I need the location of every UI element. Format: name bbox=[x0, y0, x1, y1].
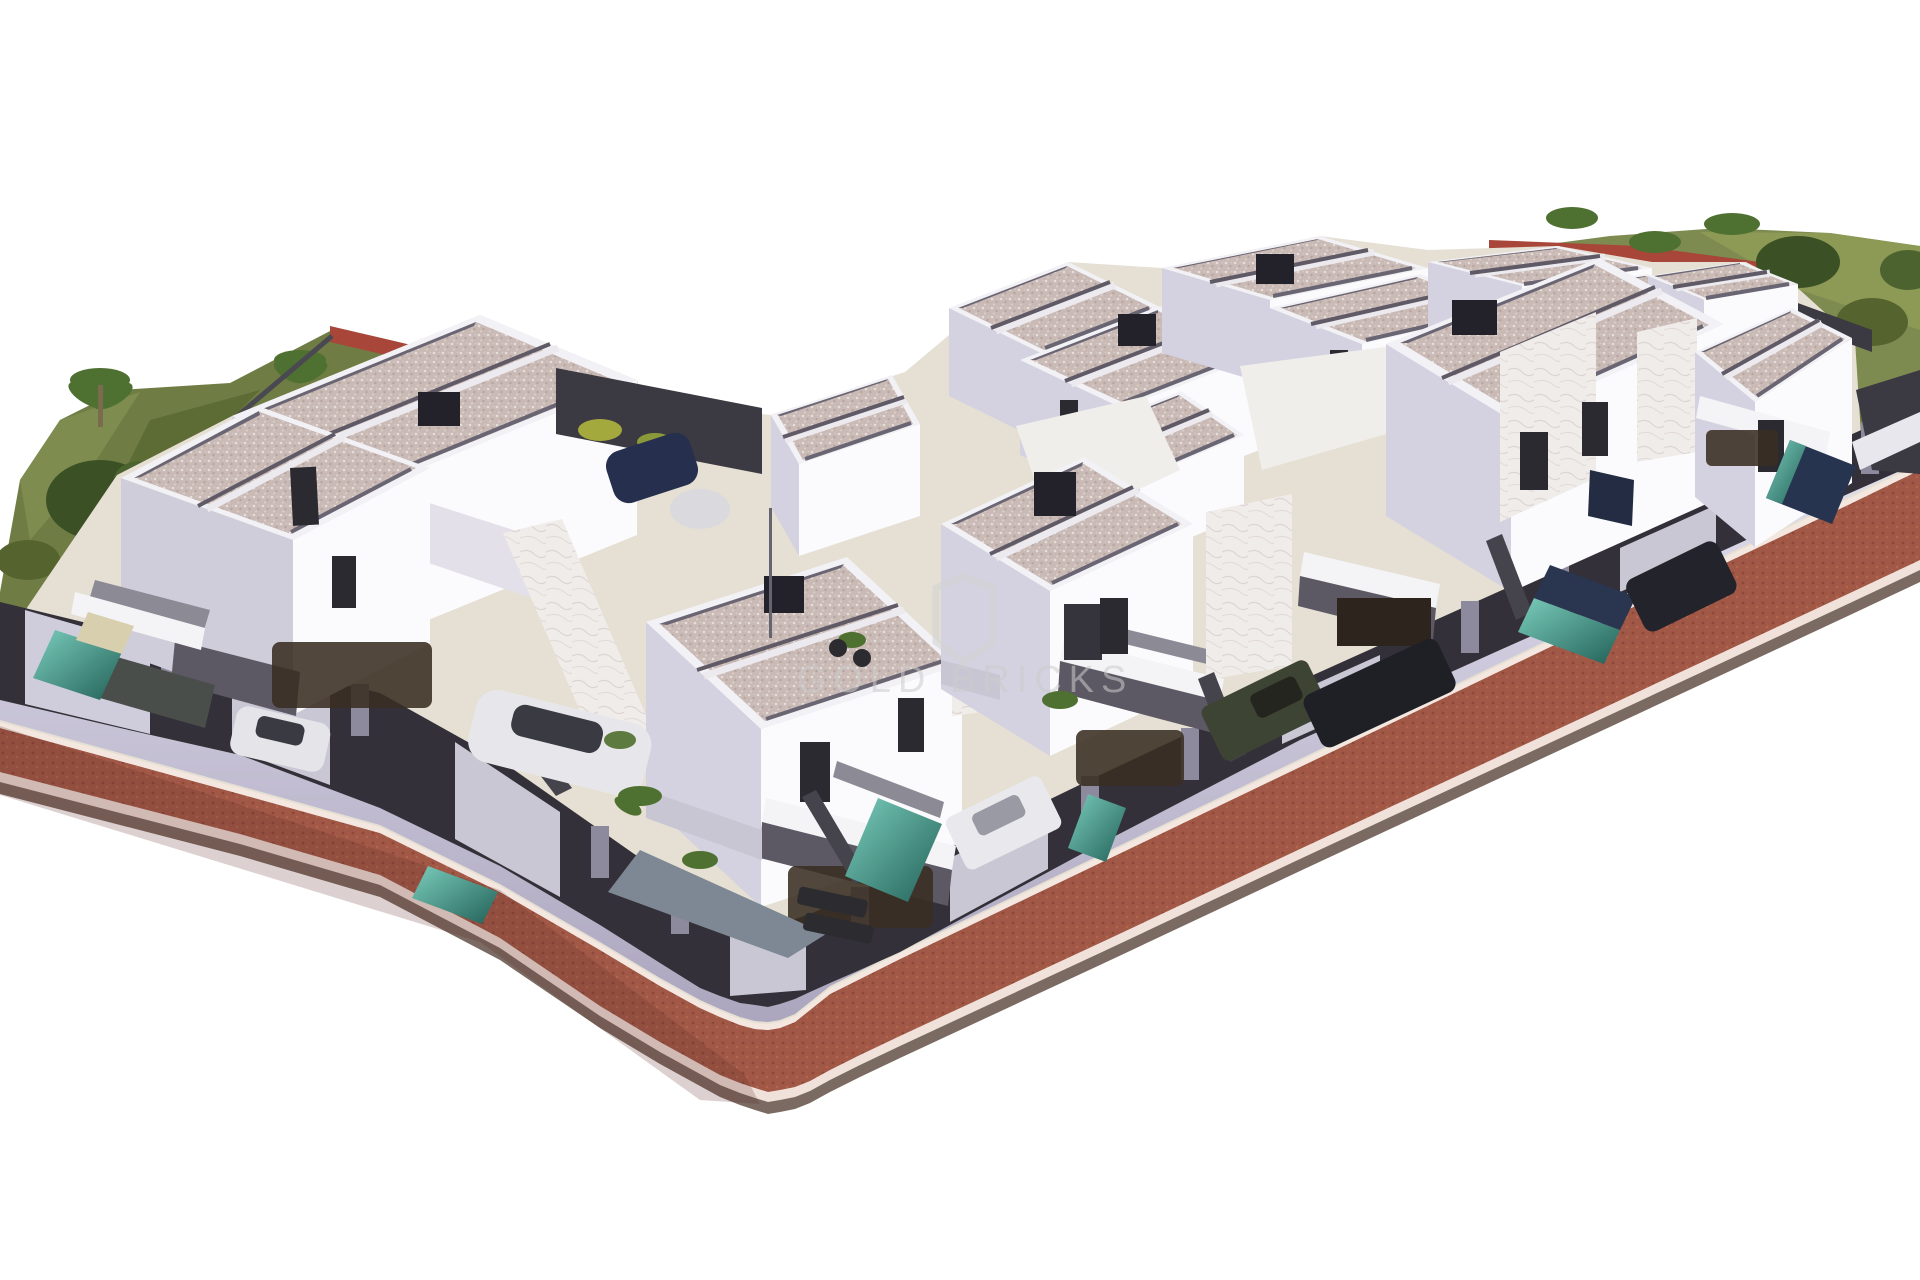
svg-text:GOLD BRICKS: GOLD BRICKS bbox=[797, 659, 1134, 701]
